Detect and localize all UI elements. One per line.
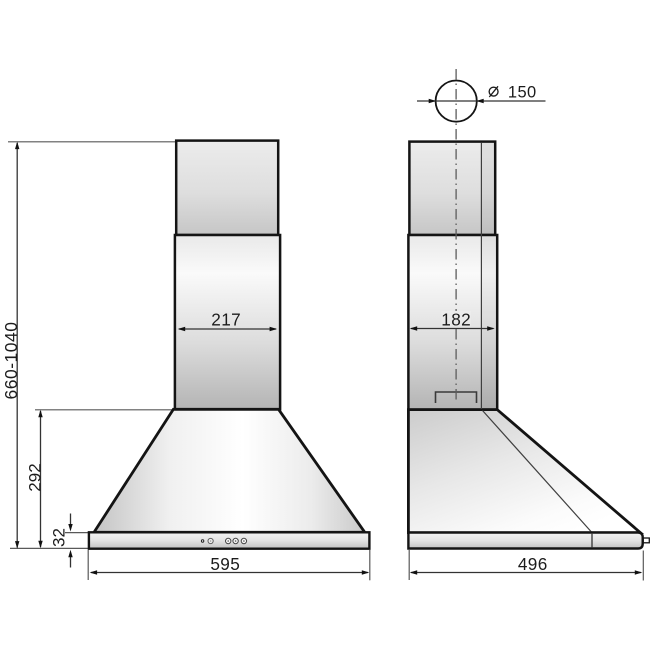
svg-text:217: 217 [211,310,241,330]
svg-text:496: 496 [518,554,548,574]
svg-text:32: 32 [50,528,69,547]
svg-text:150: 150 [508,84,537,102]
svg-text:182: 182 [441,310,471,330]
svg-text:292: 292 [26,463,45,491]
svg-text:595: 595 [210,554,240,574]
svg-text:660-1040: 660-1040 [1,322,21,400]
